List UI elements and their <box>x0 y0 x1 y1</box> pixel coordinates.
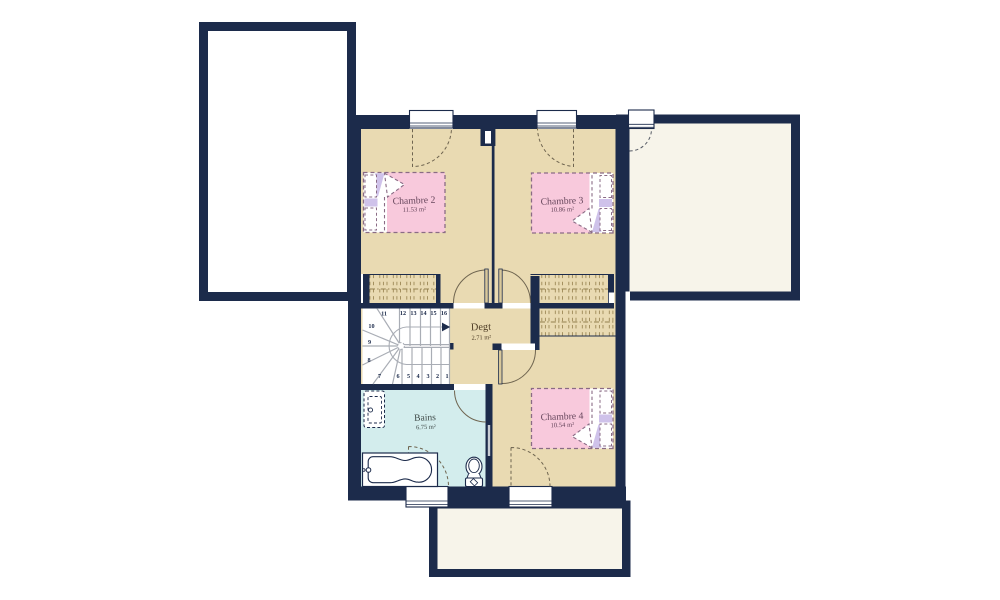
svg-text:9: 9 <box>368 339 371 346</box>
svg-text:6.75 m²: 6.75 m² <box>416 424 436 432</box>
svg-text:5: 5 <box>407 373 410 380</box>
svg-text:6: 6 <box>396 373 399 380</box>
svg-text:1: 1 <box>445 373 448 380</box>
svg-text:10: 10 <box>368 323 374 330</box>
svg-text:8: 8 <box>367 357 370 364</box>
svg-text:16: 16 <box>441 310 447 317</box>
svg-text:Degt: Degt <box>471 322 492 334</box>
svg-text:Bains: Bains <box>414 413 436 424</box>
svg-text:Chambre 2: Chambre 2 <box>392 195 435 207</box>
svg-text:11.53 m²: 11.53 m² <box>403 206 427 214</box>
svg-text:14: 14 <box>420 310 426 317</box>
svg-text:15: 15 <box>430 310 436 317</box>
svg-text:2.71 m²: 2.71 m² <box>471 334 491 342</box>
svg-text:13: 13 <box>410 310 416 317</box>
svg-text:10.86 m²: 10.86 m² <box>550 206 574 214</box>
svg-text:10.54 m²: 10.54 m² <box>550 422 574 430</box>
svg-text:12: 12 <box>400 310 406 317</box>
svg-text:7: 7 <box>378 373 381 380</box>
svg-text:11: 11 <box>381 311 387 318</box>
svg-text:4: 4 <box>416 373 419 380</box>
svg-text:2: 2 <box>436 373 439 380</box>
svg-text:3: 3 <box>426 373 429 380</box>
